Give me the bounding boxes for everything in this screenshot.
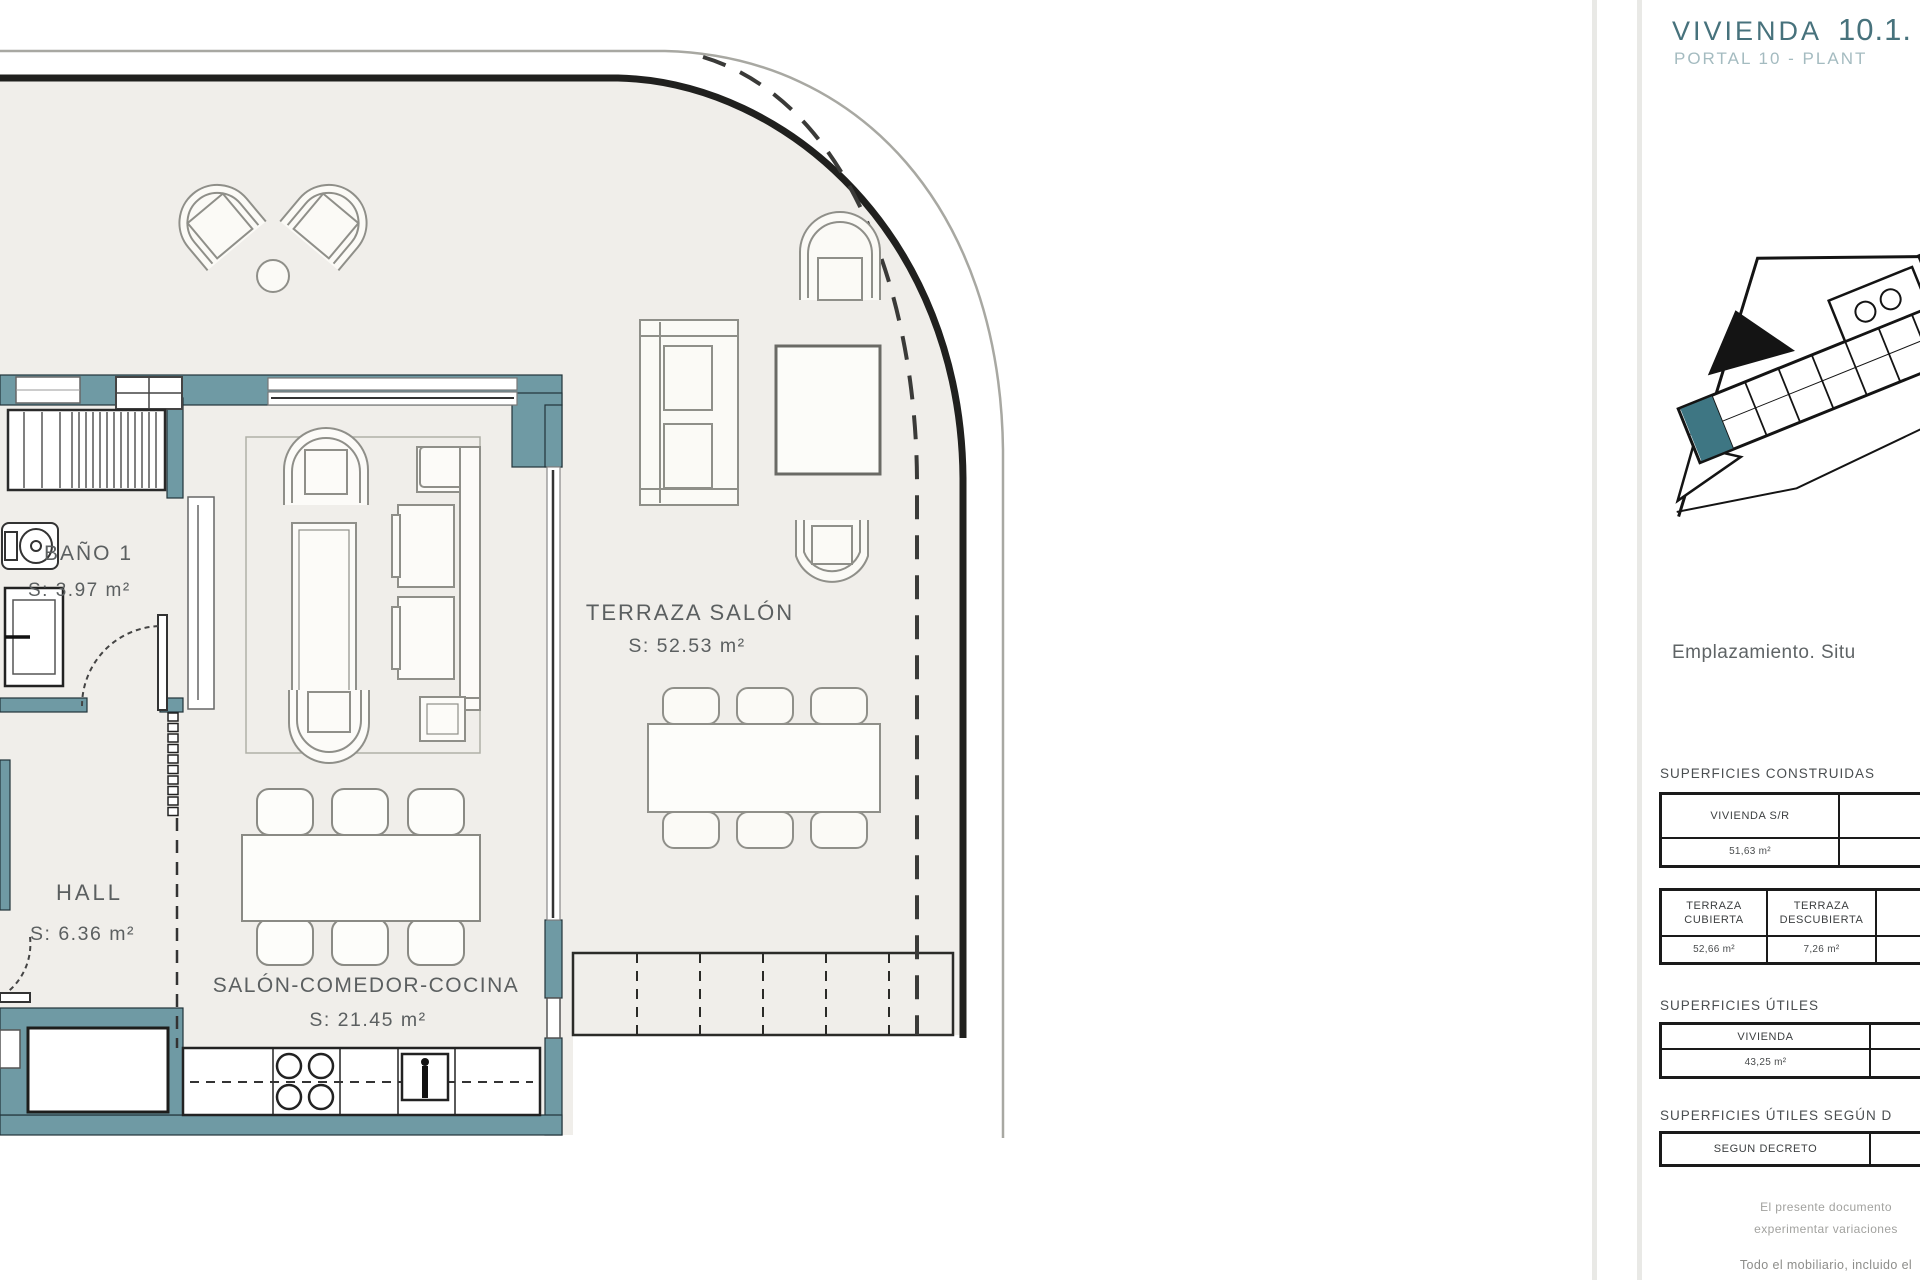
terrace-armchair	[796, 520, 868, 582]
table-constructed-vivienda: VIVIENDA S/R 51,63 m²	[1659, 792, 1920, 868]
site-location-map	[1660, 218, 1920, 518]
section-label-useful: SUPERFICIES ÚTILES	[1660, 998, 1819, 1013]
table-value-cell: 7,26 m²	[1768, 935, 1877, 962]
table-header-cell	[1871, 1134, 1920, 1164]
table-decreto: SEGUN DECRETO	[1659, 1131, 1920, 1167]
room-label-terraza: TERRAZA SALÓN	[586, 600, 794, 625]
disclaimer-text-2: Todo el mobiliario, incluido el	[1660, 1258, 1920, 1272]
armchair	[284, 428, 368, 505]
section-label-useful-decree: SUPERFICIES ÚTILES SEGÚN D	[1660, 1108, 1892, 1123]
header-line: TERRAZA	[1686, 899, 1742, 913]
header-line: TERRAZA	[1794, 899, 1850, 913]
armchair	[289, 690, 369, 763]
sheet-divider-line	[1592, 0, 1597, 1280]
terrace-round-table	[257, 260, 289, 292]
unit-title: VIVIENDA 10.1.	[1672, 12, 1912, 48]
table-value-cell: 43,25 m²	[1662, 1048, 1871, 1076]
table-header-cell	[1871, 1025, 1920, 1048]
room-area-salon: S: 21.45 m²	[309, 1009, 426, 1031]
table-value-cell: 52,66 m²	[1662, 935, 1768, 962]
table-header-cell: VIVIENDA S/R	[1662, 795, 1840, 837]
room-label-salon: SALÓN-COMEDOR-COCINA	[213, 974, 520, 997]
room-area-terraza: S: 52.53 m²	[628, 635, 745, 657]
disclaimer-line: El presente documento	[1660, 1196, 1920, 1218]
table-header-cell: VIVIENDA	[1662, 1025, 1871, 1048]
dining-set-terrace	[648, 688, 880, 848]
table-header-cell: TERRAZA CUBIERTA	[1662, 891, 1768, 935]
unit-title-word: VIVIENDA	[1672, 16, 1822, 47]
shower	[8, 410, 165, 490]
floor-plan: BAÑO 1 S: 3.97 m² HALL S: 6.36 m² SALÓN-…	[0, 0, 1592, 1285]
map-caption: Emplazamiento. Situ	[1672, 642, 1856, 664]
header-line: CUBIERTA	[1684, 913, 1743, 927]
room-area-bano: S: 3.97 m²	[28, 580, 131, 601]
dining-set-indoor	[242, 789, 480, 965]
section-label-constructed: SUPERFICIES CONSTRUIDAS	[1660, 766, 1875, 781]
table-value-cell	[1871, 1048, 1920, 1076]
header-line: DESCUBIERTA	[1780, 913, 1864, 927]
room-label-bano: BAÑO 1	[44, 541, 133, 565]
table-header-cell: SEGUN DECRETO	[1662, 1134, 1871, 1164]
side-table	[420, 697, 465, 741]
disclaimer-text: El presente documento experimentar varia…	[1660, 1196, 1920, 1240]
coffee-table	[292, 523, 356, 713]
bathroom-sink	[5, 588, 63, 686]
table-constructed-terraza: TERRAZA CUBIERTA TERRAZA DESCUBIERTA 52,…	[1659, 888, 1920, 965]
unit-title-number: 10.1.	[1838, 12, 1912, 48]
floorplan-sheet: { "colors": { "wall_teal": "#6f9aa4", "f…	[0, 0, 1920, 1280]
table-header-cell	[1877, 891, 1920, 935]
room-label-hall: HALL	[56, 880, 123, 905]
unit-subtitle: PORTAL 10 - PLANT	[1674, 49, 1867, 69]
disclaimer-line: experimentar variaciones	[1660, 1218, 1920, 1240]
terrace-table	[776, 346, 880, 474]
table-useful-vivienda: VIVIENDA 43,25 m²	[1659, 1022, 1920, 1079]
table-header-cell	[1840, 795, 1920, 837]
kitchen-counter	[183, 1048, 540, 1115]
door-panel	[188, 497, 214, 709]
table-header-cell: TERRAZA DESCUBIERTA	[1768, 891, 1877, 935]
sheet-divider-line	[1637, 0, 1642, 1280]
table-value-cell	[1840, 837, 1920, 865]
room-area-hall: S: 6.36 m²	[30, 923, 135, 945]
kitchen-sink	[402, 1054, 448, 1100]
table-value-cell: 51,63 m²	[1662, 837, 1840, 865]
terrace-armchair	[800, 212, 880, 300]
table-value-cell	[1877, 935, 1920, 962]
terrace-sofa	[640, 320, 738, 505]
